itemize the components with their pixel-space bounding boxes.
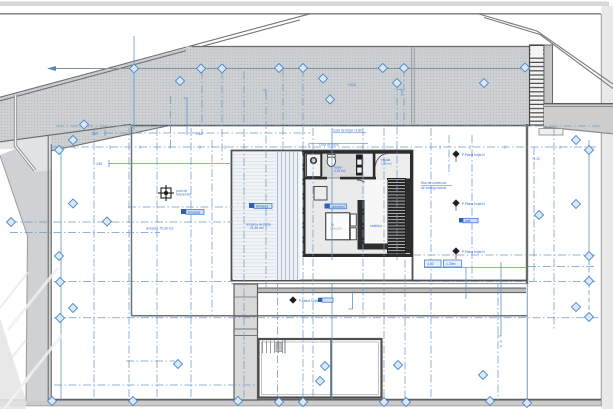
svg-text:P.Plana forjat N: P.Plana forjat N <box>462 202 485 206</box>
svg-text:pati: pati <box>465 219 471 223</box>
svg-text:terrassa: terrassa <box>256 204 268 208</box>
svg-text:2,40: 2,40 <box>196 132 202 136</box>
svg-text:4,15 m2: 4,15 m2 <box>334 169 346 173</box>
svg-text:1,20m: 1,20m <box>446 262 456 266</box>
svg-text:4,50: 4,50 <box>96 162 102 166</box>
svg-text:terrassa: terrassa <box>188 210 200 214</box>
svg-text:21,40 m2: 21,40 m2 <box>250 226 264 230</box>
svg-text:3,20: 3,20 <box>92 132 98 136</box>
svg-text:Cota de forjat: Cota de forjat <box>319 143 339 147</box>
svg-text:terrassa 75,30 m2: terrassa 75,30 m2 <box>146 227 173 231</box>
svg-text:Cota de forjat +2,80: Cota de forjat +2,80 <box>333 129 362 133</box>
svg-text:+3,20: +3,20 <box>348 83 356 87</box>
svg-text:+1,20: +1,20 <box>532 157 540 161</box>
svg-text:dormitori: dormitori <box>332 205 345 209</box>
svg-text:5,20 m2: 5,20 m2 <box>381 162 392 166</box>
svg-text:referencia: referencia <box>176 193 191 197</box>
svg-text:Mur de contencio: Mur de contencio <box>421 181 446 185</box>
svg-text:4,50: 4,50 <box>427 262 434 266</box>
svg-text:de formigo armat: de formigo armat <box>421 186 446 190</box>
svg-text:P.Plana forjat N: P.Plana forjat N <box>462 153 485 157</box>
svg-text:P.Plana forjat N: P.Plana forjat N <box>462 250 485 254</box>
svg-text:vestidor: vestidor <box>370 224 383 228</box>
